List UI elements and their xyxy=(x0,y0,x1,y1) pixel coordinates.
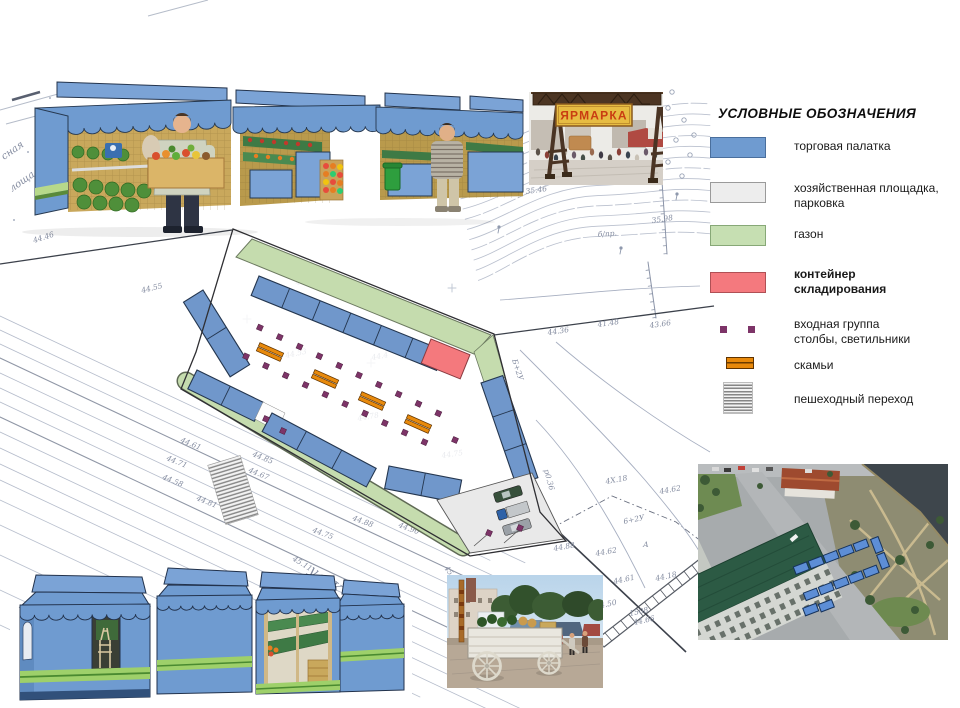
legend-label: контейнер складирования xyxy=(794,267,886,298)
container-swatch xyxy=(710,272,766,293)
tent-open xyxy=(256,572,340,694)
legend-label: скамьи xyxy=(794,358,833,373)
photo-aerial-site xyxy=(635,452,948,662)
bench-swatch xyxy=(726,357,754,369)
legend-title: УСЛОВНЫЕ ОБОЗНАЧЕНИЯ xyxy=(718,106,916,121)
tent xyxy=(336,580,404,692)
post-swatch xyxy=(748,326,755,333)
crossing-swatch xyxy=(723,382,753,414)
photo-market-entrance: ЯРМАРКА xyxy=(529,90,677,185)
post-swatch xyxy=(720,326,727,333)
legend-label: газон xyxy=(794,227,823,242)
design-board: снаялоща44.4644.5544.644.5344.444.7844.7… xyxy=(0,0,960,708)
fair-sign-text: ЯРМАРКА xyxy=(560,109,628,123)
tent-with-door xyxy=(20,575,150,700)
render-stall-row-front xyxy=(22,82,523,237)
lawn-swatch xyxy=(710,225,766,246)
legend: УСЛОВНЫЕ ОБОЗНАЧЕНИЯ торговая палатка хо… xyxy=(710,106,955,426)
green-bin xyxy=(383,163,402,190)
legend-label: торговая палатка xyxy=(794,139,891,154)
tent xyxy=(157,568,252,694)
legend-label: хозяйственная площадка, парковка xyxy=(794,181,939,212)
legend-label: пешеходный переход xyxy=(794,392,913,407)
photo-market-square xyxy=(447,575,608,688)
utility-area-swatch xyxy=(710,182,766,203)
tent-swatch xyxy=(710,137,766,158)
fruit-crates xyxy=(320,160,343,200)
legend-label: входная группа столбы, светильники xyxy=(794,317,910,348)
render-tent-row-front xyxy=(10,568,412,708)
